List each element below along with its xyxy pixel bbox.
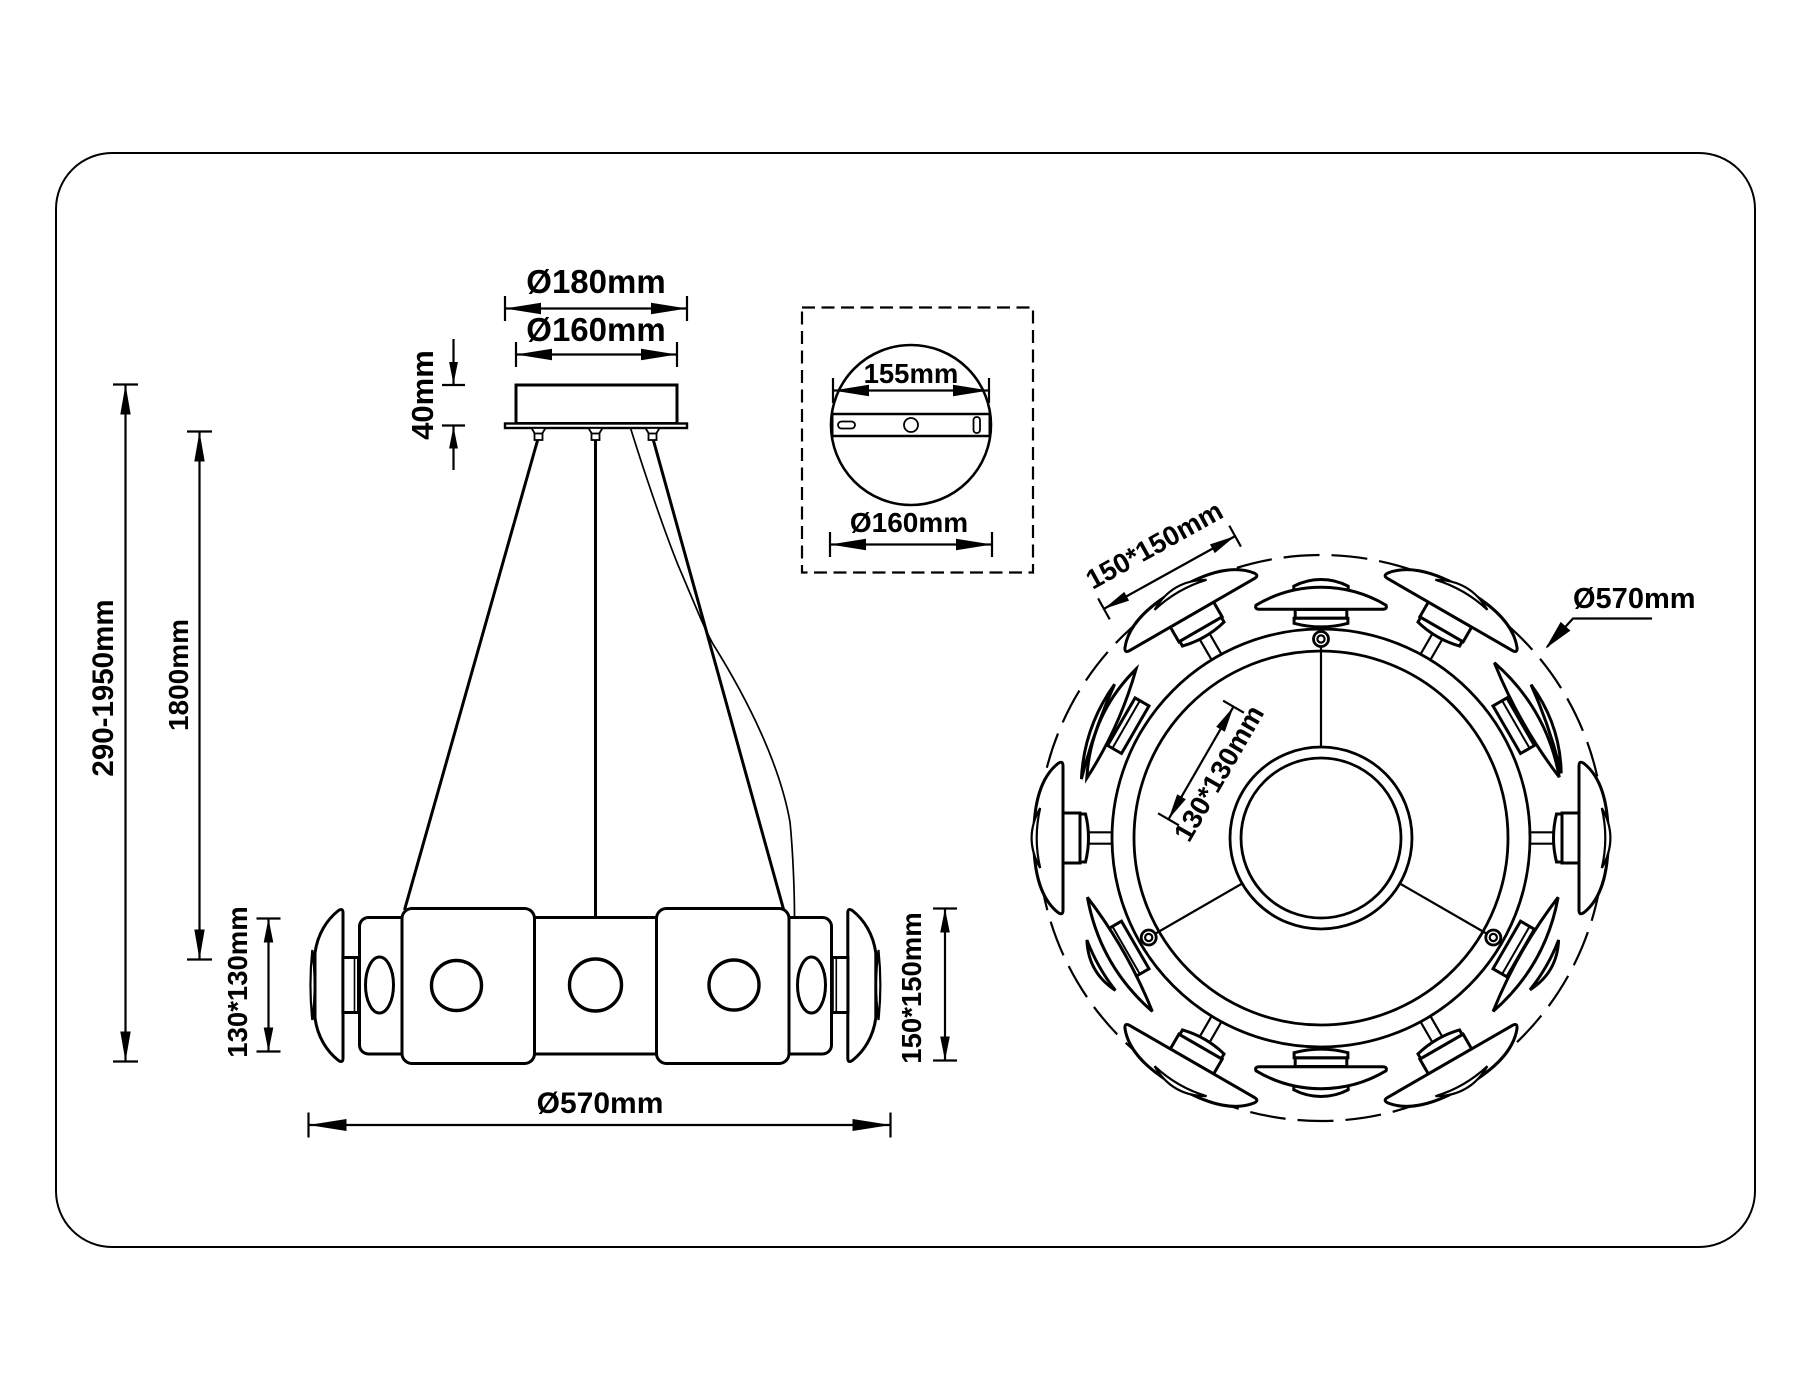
svg-text:155mm: 155mm: [864, 358, 959, 389]
svg-text:Ø180mm: Ø180mm: [526, 263, 665, 300]
svg-text:130*130mm: 130*130mm: [222, 906, 253, 1057]
svg-text:Ø160mm: Ø160mm: [526, 311, 665, 348]
svg-text:150*150mm: 150*150mm: [896, 912, 927, 1063]
svg-text:1800mm: 1800mm: [163, 619, 194, 731]
svg-text:40mm: 40mm: [405, 350, 440, 440]
svg-text:290-1950mm: 290-1950mm: [87, 599, 120, 776]
svg-text:Ø570mm: Ø570mm: [537, 1087, 664, 1120]
svg-text:Ø570mm: Ø570mm: [1573, 583, 1696, 615]
svg-text:Ø160mm: Ø160mm: [850, 507, 968, 538]
